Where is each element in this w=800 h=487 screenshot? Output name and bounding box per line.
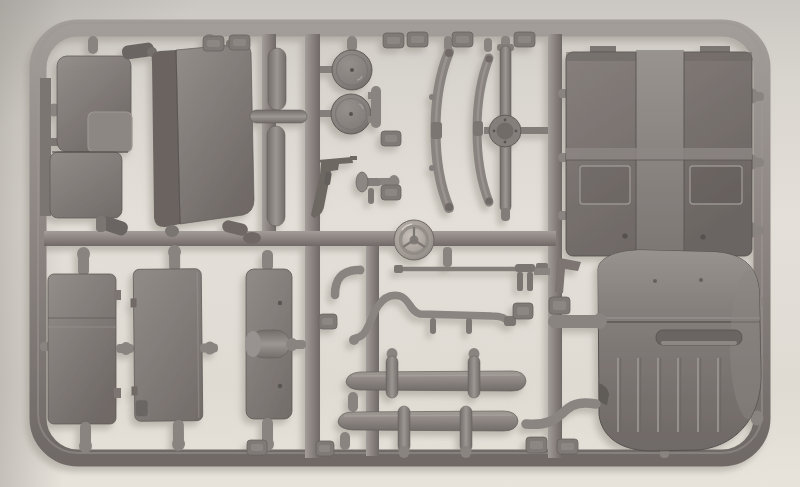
folded-seat: folded seat back panel xyxy=(152,40,261,244)
floor-pan: floor pan with transmission tunnel xyxy=(566,46,752,256)
photo-frame: sprue outer frame internal runner bars xyxy=(0,0,800,487)
steering-wheel: steering wheel xyxy=(394,220,434,260)
sprue-photo: sprue outer frame internal runner bars xyxy=(0,0,800,487)
